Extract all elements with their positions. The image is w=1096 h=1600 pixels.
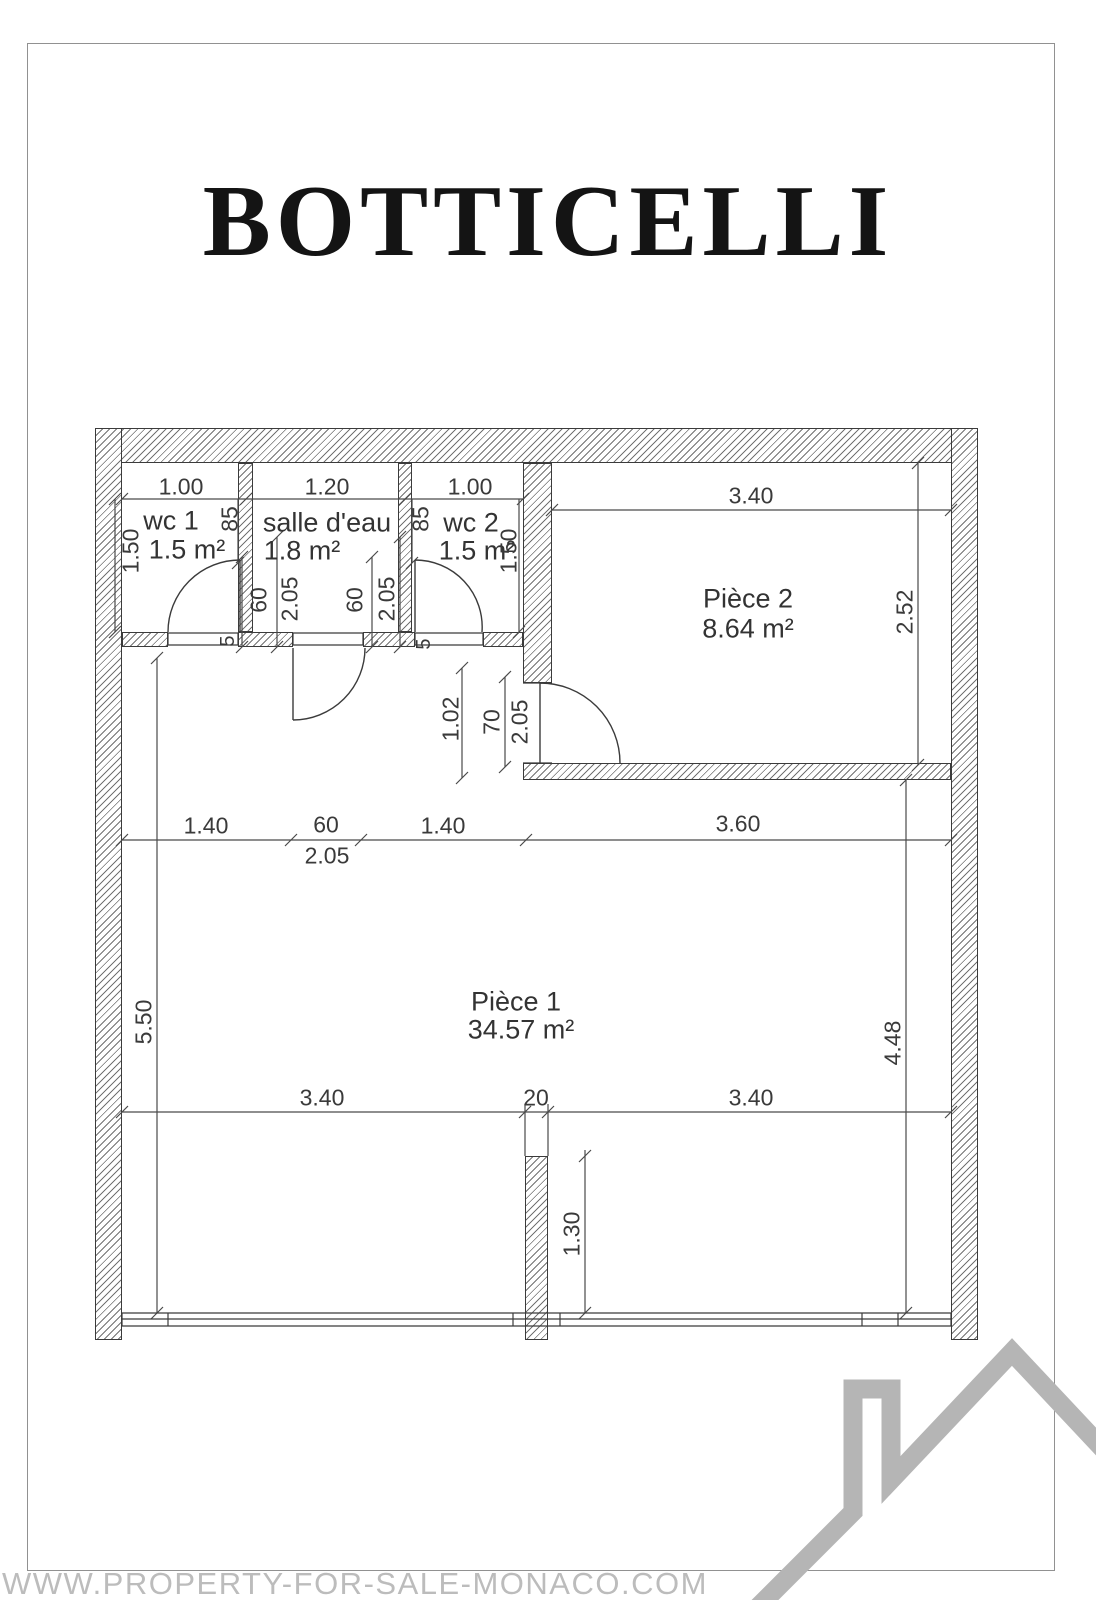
floorplan-page: BOTTICELLI wc 1 1.5 m² salle d'eau 1.8 m…	[0, 0, 1096, 1600]
house-logo-icon	[0, 0, 1096, 1600]
watermark-url: WWW.PROPERTY-FOR-SALE-MONACO.COM	[2, 1566, 708, 1600]
